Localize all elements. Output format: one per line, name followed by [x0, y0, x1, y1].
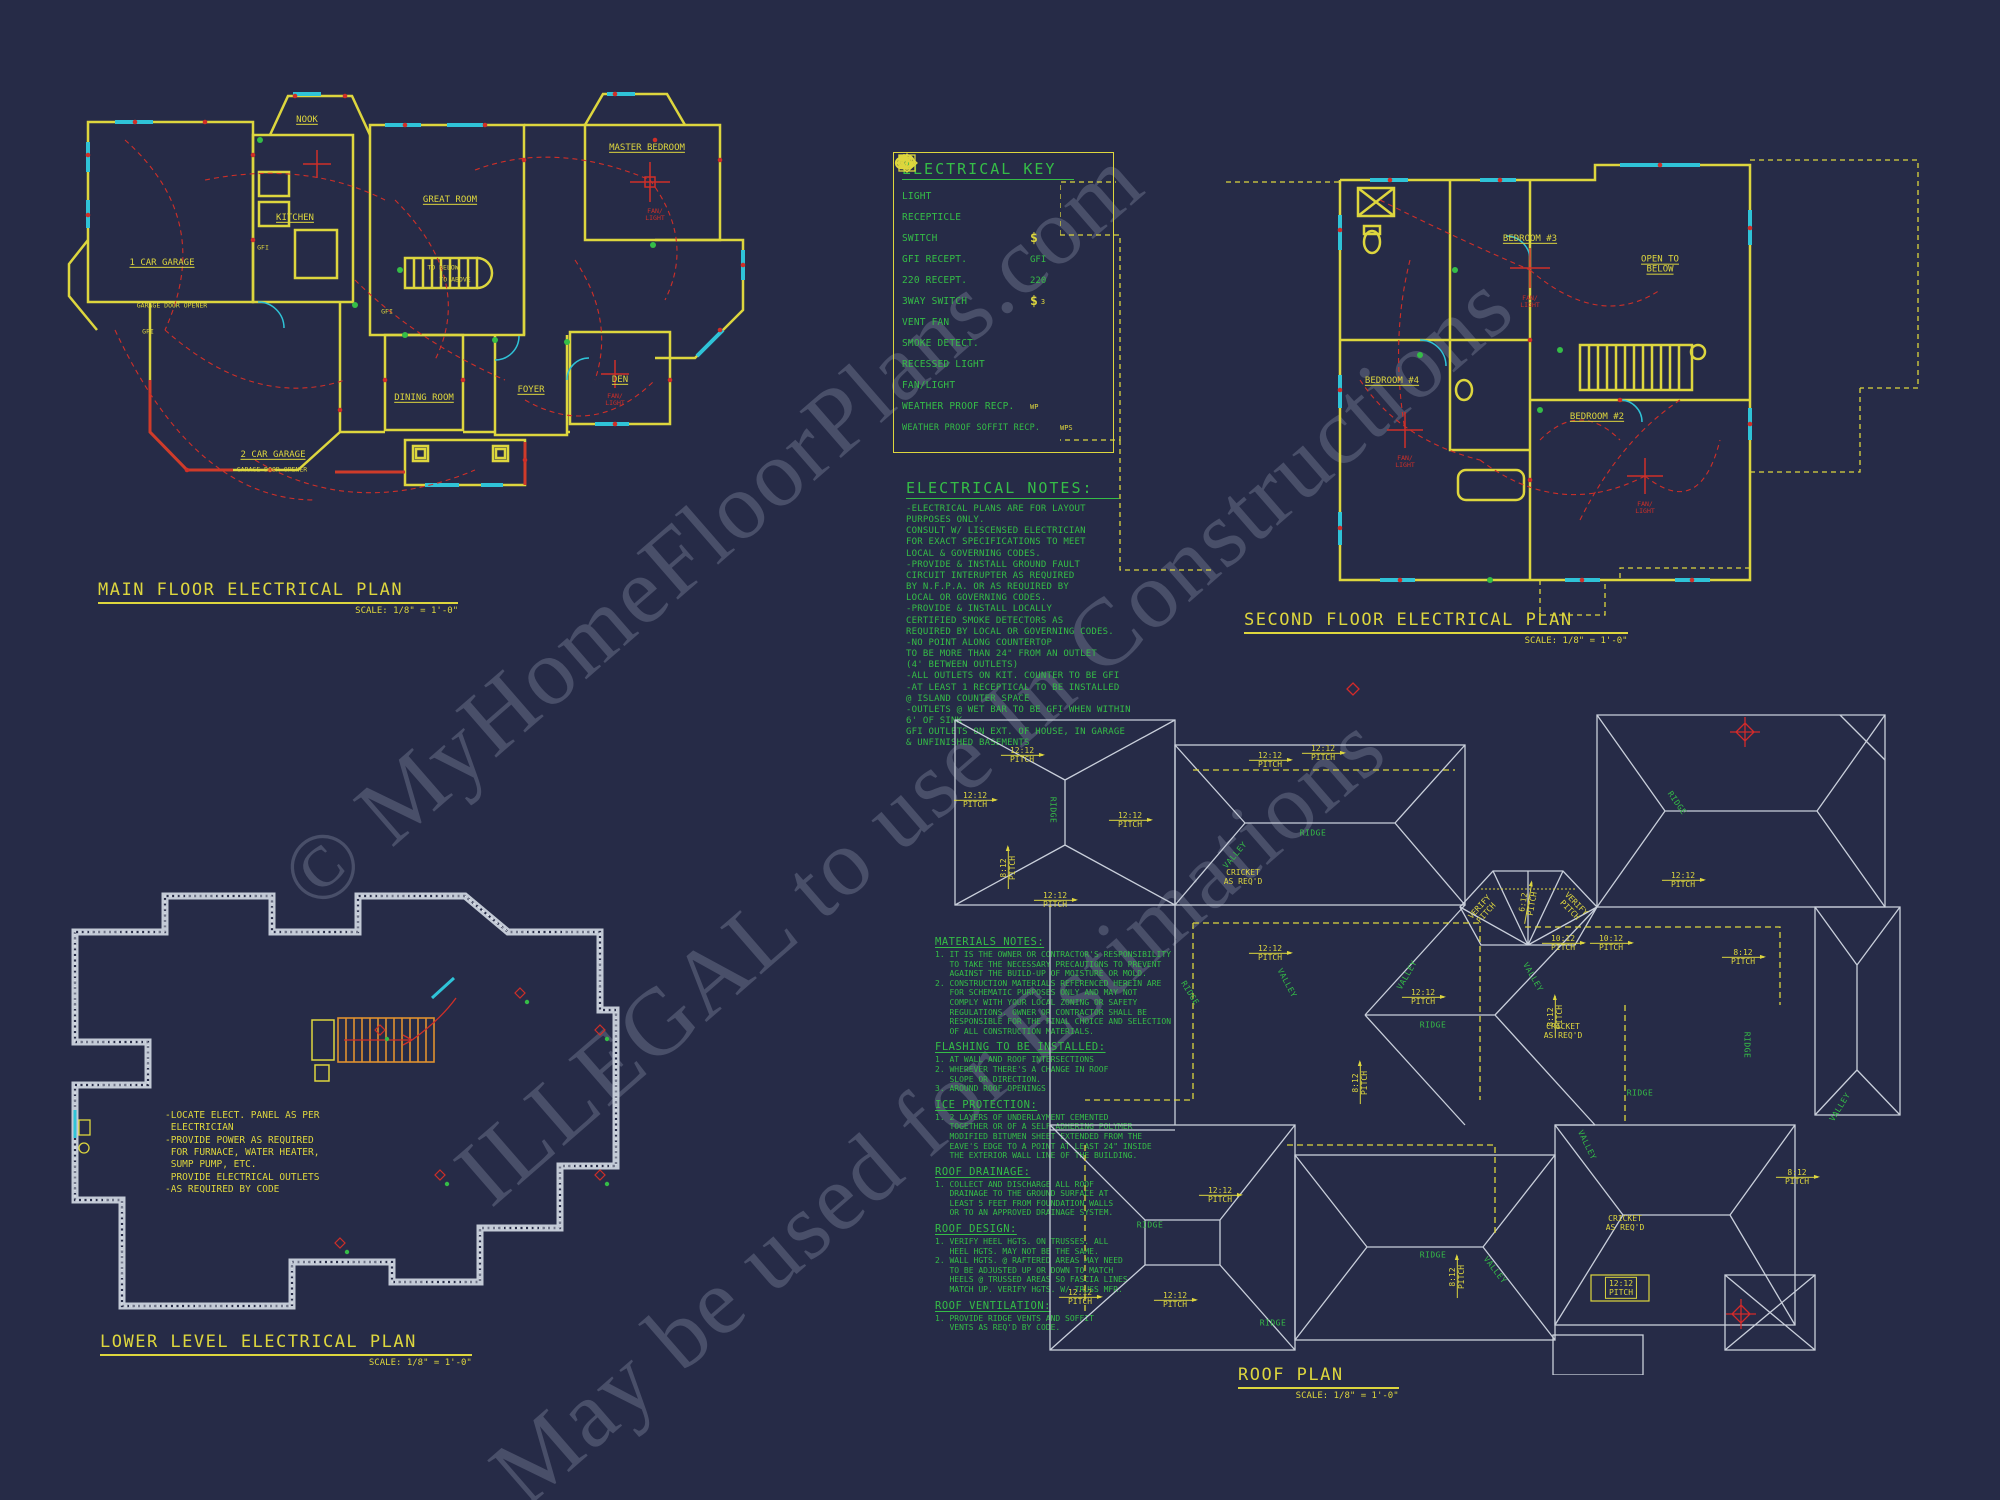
room-label-bedroom-3: BEDROOM #3 [1503, 234, 1557, 244]
cad-sheet: © MyHomeFloorPlans.com ILLEGAL to use In… [0, 0, 2000, 1500]
gfi-label: GFI [142, 328, 154, 335]
lower-level-notes: -LOCATE ELECT. PANEL AS PER ELECTRICIAN … [165, 1110, 319, 1196]
fan-light-label: FAN/ LIGHT [1395, 455, 1415, 469]
room-label-kitchen: KITCHEN [276, 213, 314, 223]
second-plan-scale: SCALE: 1/8" = 1'-0" [1244, 636, 1628, 646]
roof-pitch-label: 10:12PITCH [1599, 934, 1623, 952]
room-label-2-car-garage: 2 CAR GARAGE [240, 450, 305, 460]
room-label-den: DEN [612, 375, 628, 385]
roof-pitch-label: 12:12PITCH [1258, 751, 1282, 769]
ridge-label: RIDGE [1049, 797, 1058, 824]
main-plan-titleblock: MAIN FLOOR ELECTRICAL PLAN SCALE: 1/8" =… [98, 580, 458, 616]
roof-pitch-label: 12:12PITCH [1208, 1186, 1232, 1204]
lower-level-plan: -LOCATE ELECT. PANEL AS PER ELECTRICIAN … [60, 870, 660, 1390]
stair-label-to-below: TO BELOW [427, 264, 458, 271]
roof-pitch-label: 12:12PITCH [1118, 811, 1142, 829]
roof-pitch-label: 12:12PITCH [1010, 746, 1034, 764]
roof-pitch-label: 12:12PITCH [1258, 944, 1282, 962]
switch-icon: $ [1030, 231, 1038, 246]
roof-pitch-label: 12:12PITCH [1163, 1291, 1187, 1309]
lower-plan-scale: SCALE: 1/8" = 1'-0" [100, 1358, 472, 1368]
fan-light-label: FAN/ LIGHT [605, 393, 625, 407]
room-label-bedroom-2: BEDROOM #2 [1570, 412, 1624, 422]
room-label-foyer: FOYER [517, 385, 544, 395]
room-label-master-bedroom: MASTER BEDROOM [609, 143, 685, 153]
roof-pitch-label: 8:12PITCH [1731, 948, 1755, 966]
main-plan-title: MAIN FLOOR ELECTRICAL PLAN [98, 580, 458, 604]
roof-pitch-label: 12:12PITCH [1043, 891, 1067, 909]
roof-plan-scale: SCALE: 1/8" = 1'-0" [1238, 1391, 1399, 1401]
roof-pitch-label-boxed: 12:12PITCH [1605, 1277, 1637, 1299]
roof-pitch-label: 10:12PITCH [1551, 934, 1575, 952]
fan-light-label: FAN/ LIGHT [645, 208, 665, 222]
room-label-nook: NOOK [296, 115, 318, 125]
roof-plan: 12:12PITCH 12:12PITCH 12:12PITCH 12:12PI… [935, 675, 1935, 1420]
ridge-label: RIDGE [1743, 1032, 1752, 1059]
room-label-bedroom-4: BEDROOM #4 [1365, 376, 1419, 386]
fan-light-label: FAN/ LIGHT [1635, 501, 1655, 515]
stair-label-to-above: TO ABOVE [439, 276, 470, 283]
roof-pitch-label: 8:12PITCH [1351, 1071, 1369, 1095]
lower-plan-title: LOWER LEVEL ELECTRICAL PLAN [100, 1332, 472, 1356]
roof-pitch-label: 12:12PITCH [1411, 988, 1435, 1006]
roof-pitch-label: 12:12PITCH [1311, 744, 1335, 762]
roof-pitch-label: 12:12PITCH [963, 791, 987, 809]
second-plan-titleblock: SECOND FLOOR ELECTRICAL PLAN SCALE: 1/8"… [1244, 610, 1628, 646]
roof-plan-titleblock: ROOF PLAN SCALE: 1/8" = 1'-0" [1238, 1365, 1399, 1401]
cricket-label: CRICKET AS REQ'D [1224, 868, 1263, 886]
electrical-key-title: ELECTRICAL KEY [902, 160, 1074, 180]
roof-pitch-label: 8:12PITCH [1785, 1168, 1809, 1186]
fan-light-label: FAN/ LIGHT [1520, 295, 1540, 309]
lower-plan-titleblock: LOWER LEVEL ELECTRICAL PLAN SCALE: 1/8" … [100, 1332, 472, 1368]
main-plan-scale: SCALE: 1/8" = 1'-0" [98, 606, 458, 616]
main-floor-plan-drawing [55, 80, 755, 615]
roof-pitch-label: 8:12PITCH [1448, 1265, 1466, 1289]
gfi-label: GFI [381, 308, 393, 315]
ridge-label: RIDGE [1627, 1089, 1654, 1098]
ridge-label: RIDGE [1420, 1251, 1447, 1260]
room-label-open-to-below: OPEN TO BELOW [1641, 255, 1679, 276]
gfi-label: GFI [257, 244, 269, 251]
ridge-label: RIDGE [1300, 829, 1327, 838]
room-label-garage-door-opener: GARAGE DOOR OPENER [137, 302, 207, 309]
room-label-dining-room: DINING ROOM [394, 393, 454, 403]
room-label-garage-door-opener-2: GARAGE DOOR OPENER [237, 466, 307, 473]
second-plan-title: SECOND FLOOR ELECTRICAL PLAN [1244, 610, 1628, 634]
room-label-1-car-garage: 1 CAR GARAGE [129, 258, 194, 268]
second-floor-plan: BEDROOM #3 BEDROOM #4 BEDROOM #2 OPEN TO… [1060, 140, 1930, 660]
second-floor-plan-drawing [1060, 140, 1920, 620]
three-way-switch-icon: $ [1030, 294, 1038, 309]
roof-plan-title: ROOF PLAN [1238, 1365, 1399, 1389]
roof-pitch-label: 12:12PITCH [1068, 1288, 1092, 1306]
room-label-great-room: GREAT ROOM [423, 195, 477, 205]
weather-proof-soffit-receptacle-icon [894, 153, 908, 171]
cricket-label: CRICKET AS REQ'D [1544, 1022, 1583, 1040]
ridge-label: RIDGE [1420, 1021, 1447, 1030]
roof-pitch-label: 8:12PITCH [999, 856, 1017, 880]
lower-level-plan-drawing [60, 870, 640, 1320]
ridge-label: RIDGE [1260, 1319, 1287, 1328]
roof-pitch-label: 12:12PITCH [1671, 871, 1695, 889]
cricket-label: CRICKET AS REQ'D [1606, 1214, 1645, 1232]
main-floor-plan: 1 CAR GARAGE GARAGE DOOR OPENER 2 CAR GA… [55, 80, 755, 645]
ridge-label: RIDGE [1137, 1221, 1164, 1230]
